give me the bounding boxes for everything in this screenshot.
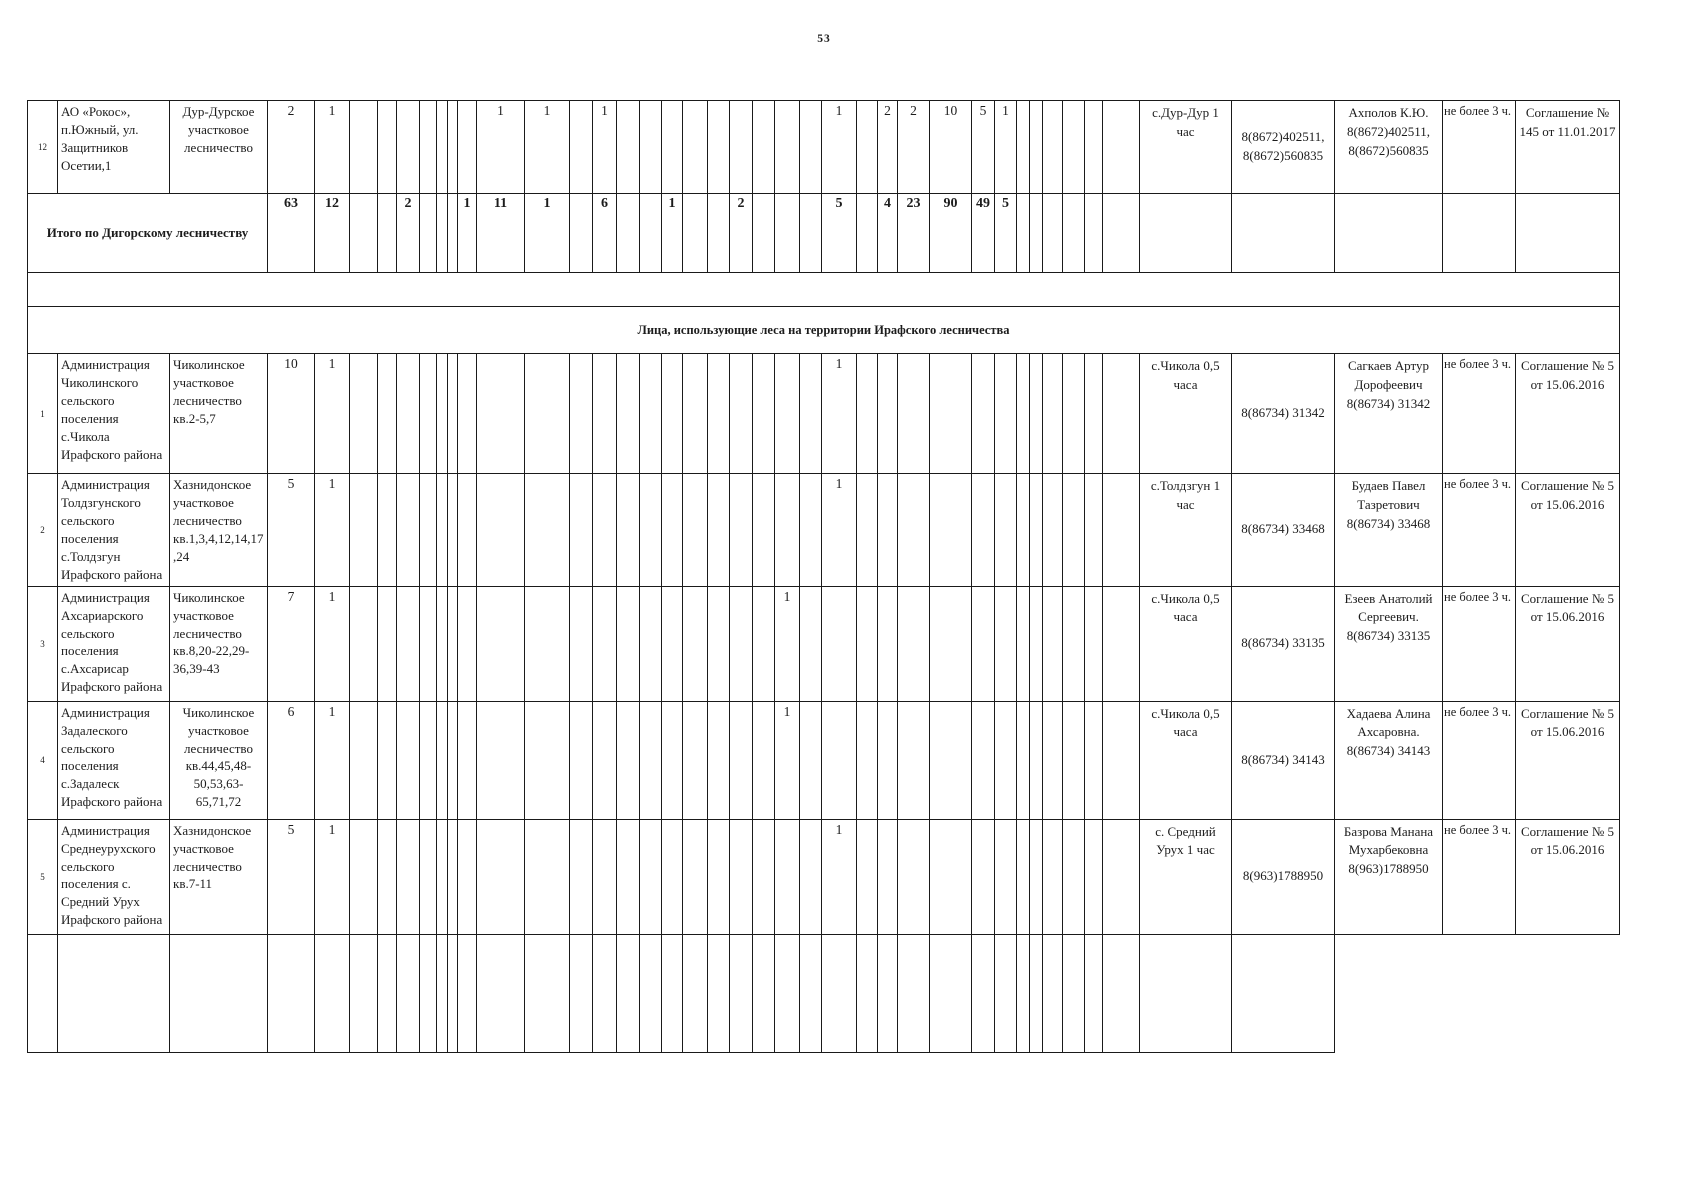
value-cell [857,934,878,1052]
value-cell [878,819,898,934]
organization-cell: АО «Рокос», п.Южный, ул. Защитников Осет… [58,101,170,194]
organization-cell [58,934,170,1052]
value-cell [448,101,458,194]
value-cell [1103,701,1140,819]
value-cell [898,474,930,587]
value-cell [437,819,448,934]
value-cell [570,819,593,934]
table-row-5: 5Администрация Среднеурухского сельского… [28,819,1620,934]
value-cell [930,701,972,819]
value-cell [878,934,898,1052]
value-cell: 1 [525,101,570,194]
limit-cell: не более 3 ч. [1443,474,1516,587]
value-cell [570,934,593,1052]
value-cell: 1 [315,354,350,474]
value-cell [1043,819,1063,934]
value-cell [800,586,822,701]
value-cell [1103,101,1140,194]
value-cell [617,819,640,934]
phone-cell: 8(86734) 34143 [1232,701,1335,819]
value-cell [525,474,570,587]
place-cell: с.Чикола 0,5 часа [1140,586,1232,701]
value-cell [640,101,662,194]
summary-value-cell: 1 [458,194,477,273]
summary-value-cell [1085,194,1103,273]
value-cell [995,701,1017,819]
section-header: Лица, использующие леса на территории Ир… [28,307,1620,354]
value-cell: 1 [593,101,617,194]
contact-cell: Ахполов К.Ю. 8(8672)402511, 8(8672)56083… [1335,101,1443,194]
summary-value-cell [775,194,800,273]
value-cell [1043,101,1063,194]
value-cell: 1 [822,474,857,587]
summary-value-cell [1043,194,1063,273]
value-cell: 1 [315,586,350,701]
value-cell [930,354,972,474]
value-cell [640,701,662,819]
phone-cell [1232,934,1335,1052]
value-cell [458,101,477,194]
table-row-4: 4Администрация Задалеского сельского пос… [28,701,1620,819]
value-cell [753,474,775,587]
value-cell [1085,474,1103,587]
value-cell [437,934,448,1052]
value-cell [437,101,448,194]
value-cell [800,354,822,474]
value-cell [1017,474,1030,587]
value-cell [1063,474,1085,587]
summary-value-cell [753,194,775,273]
place-cell: с. Средний Урух 1 час [1140,819,1232,934]
contact-cell: Базрова Манана Мухарбековна 8(963)178895… [1335,819,1443,934]
agreement-cell: Соглашение № 5 от 15.06.2016 [1516,474,1620,587]
value-cell [1063,101,1085,194]
value-cell [477,474,525,587]
value-cell [730,934,753,1052]
limit-cell: не более 3 ч. [1443,101,1516,194]
forestry-cell: Дур-Дурское участковое лесничество [170,101,268,194]
value-cell [775,474,800,587]
value-cell [708,354,730,474]
value-cell [378,474,397,587]
phone-cell: 8(86734) 33468 [1232,474,1335,587]
value-cell [857,819,878,934]
value-cell [730,701,753,819]
value-cell [378,354,397,474]
value-cell [730,819,753,934]
summary-value-cell [378,194,397,273]
value-cell [640,934,662,1052]
value-cell [448,819,458,934]
table-row-1: 1Администрация Чиколинского сельского по… [28,354,1620,474]
phone-cell: 8(86734) 33135 [1232,586,1335,701]
summary-value-cell: 5 [995,194,1017,273]
value-cell [477,354,525,474]
value-cell [1085,101,1103,194]
row-number: 5 [28,819,58,934]
value-cell [640,474,662,587]
table-row-3: 3Администрация Ахсариарского сельского п… [28,586,1620,701]
value-cell [1043,354,1063,474]
value-cell [397,701,420,819]
value-cell [448,701,458,819]
value-cell [1030,101,1043,194]
summary-value-cell: 2 [397,194,420,273]
summary-value-cell: 90 [930,194,972,273]
value-cell [640,819,662,934]
value-cell [448,934,458,1052]
value-cell [1063,586,1085,701]
contact-cell: Хадаева Алина Ахсаровна. 8(86734) 34143 [1335,701,1443,819]
value-cell [593,354,617,474]
value-cell [898,586,930,701]
place-cell: с.Дур-Дур 1 час [1140,101,1232,194]
value-cell [525,354,570,474]
value-cell [708,101,730,194]
value-cell [437,354,448,474]
value-cell [397,819,420,934]
value-cell [857,101,878,194]
value-cell: 7 [268,586,315,701]
summary-value-cell [1017,194,1030,273]
agreement-cell: Соглашение № 5 от 15.06.2016 [1516,701,1620,819]
phone-cell: 8(8672)402511, 8(8672)560835 [1232,101,1335,194]
value-cell [448,586,458,701]
value-cell [662,701,683,819]
organization-cell: Администрация Задалеского сельского посе… [58,701,170,819]
value-cell [1043,474,1063,587]
value-cell [995,586,1017,701]
value-cell [857,586,878,701]
value-cell [730,354,753,474]
value-cell [1063,819,1085,934]
value-cell: 1 [775,701,800,819]
summary-value-cell [1063,194,1085,273]
value-cell: 1 [315,701,350,819]
summary-value-cell [708,194,730,273]
value-cell [448,354,458,474]
summary-value-cell [683,194,708,273]
value-cell [378,586,397,701]
value-cell [397,934,420,1052]
value-cell [1017,354,1030,474]
value-cell [1103,474,1140,587]
value-cell: 5 [268,819,315,934]
value-cell [662,586,683,701]
value-cell: 6 [268,701,315,819]
value-cell [458,934,477,1052]
summary-value-cell: 49 [972,194,995,273]
value-cell [593,934,617,1052]
forestry-cell: Чиколинское участковое лесничество кв.2-… [170,354,268,474]
value-cell [350,586,378,701]
value-cell [972,354,995,474]
agreement-cell: Соглашение № 145 от 11.01.2017 [1516,101,1620,194]
value-cell [617,586,640,701]
partial-row [28,934,1620,1052]
value-cell [775,101,800,194]
value-cell [378,819,397,934]
value-cell [995,819,1017,934]
value-cell [753,819,775,934]
summary-value-cell [617,194,640,273]
value-cell [350,354,378,474]
summary-value-cell: 1 [662,194,683,273]
value-cell [1085,354,1103,474]
contact-cell [1335,194,1443,273]
row-number: 3 [28,586,58,701]
value-cell [525,819,570,934]
blank-cell [28,273,1620,307]
value-cell [857,701,878,819]
value-cell [437,586,448,701]
summary-value-cell [1103,194,1140,273]
forestry-cell: Чиколинское участковое лесничество кв.8,… [170,586,268,701]
value-cell [1043,934,1063,1052]
summary-label: Итого по Дигорскому лесничеству [28,194,268,273]
value-cell [458,354,477,474]
forestry-cell: Хазнидонское участковое лесничество кв.1… [170,474,268,587]
summary-value-cell [857,194,878,273]
value-cell [593,474,617,587]
value-cell [753,701,775,819]
value-cell [420,934,437,1052]
summary-value-cell: 5 [822,194,857,273]
value-cell [458,474,477,587]
value-cell [640,354,662,474]
value-cell [593,586,617,701]
value-cell [477,701,525,819]
value-cell: 1 [315,474,350,587]
value-cell [617,474,640,587]
limit-cell [1443,194,1516,273]
summary-value-cell [1030,194,1043,273]
value-cell: 1 [315,819,350,934]
place-cell: с.Чикола 0,5 часа [1140,701,1232,819]
page-number: 53 [28,33,1620,45]
summary-value-cell [350,194,378,273]
value-cell [1017,934,1030,1052]
value-cell [593,819,617,934]
value-cell [1085,819,1103,934]
value-cell [995,934,1017,1052]
value-cell: 1 [477,101,525,194]
row-number: 2 [28,474,58,587]
value-cell [350,474,378,587]
value-cell [1063,934,1085,1052]
value-cell [570,101,593,194]
value-cell [972,819,995,934]
value-cell [800,819,822,934]
value-cell [1030,586,1043,701]
value-cell [1030,934,1043,1052]
value-cell [617,934,640,1052]
value-cell [397,354,420,474]
summary-value-cell: 6 [593,194,617,273]
place-cell [1140,194,1232,273]
contact-cell: Езеев Анатолий Сергеевич. 8(86734) 33135 [1335,586,1443,701]
limit-cell: не более 3 ч. [1443,701,1516,819]
value-cell [857,474,878,587]
value-cell [878,474,898,587]
value-cell [878,586,898,701]
value-cell: 1 [995,101,1017,194]
phone-cell: 8(963)1788950 [1232,819,1335,934]
value-cell [437,474,448,587]
value-cell [420,474,437,587]
summary-value-cell [420,194,437,273]
summary-value-cell [570,194,593,273]
value-cell [753,354,775,474]
value-cell [570,701,593,819]
value-cell [972,701,995,819]
summary-value-cell: 12 [315,194,350,273]
blank-row [28,273,1620,307]
value-cell [930,474,972,587]
contact-cell: Будаев Павел Тазретович 8(86734) 33468 [1335,474,1443,587]
limit-cell: не более 3 ч. [1443,354,1516,474]
organization-cell: Администрация Толдзгунского сельского по… [58,474,170,587]
limit-cell: не более 3 ч. [1443,586,1516,701]
phone-cell: 8(86734) 31342 [1232,354,1335,474]
value-cell [730,474,753,587]
value-cell [1017,701,1030,819]
value-cell [730,101,753,194]
agreement-cell: Соглашение № 5 от 15.06.2016 [1516,819,1620,934]
value-cell [1030,354,1043,474]
value-cell [397,101,420,194]
place-cell: с.Чикола 0,5 часа [1140,354,1232,474]
value-cell [1030,701,1043,819]
row-number: 1 [28,354,58,474]
value-cell [857,354,878,474]
value-cell [420,354,437,474]
agreement-cell [1516,194,1620,273]
summary-value-cell [448,194,458,273]
value-cell [822,586,857,701]
value-cell [822,701,857,819]
value-cell [525,934,570,1052]
summary-value-cell: 4 [878,194,898,273]
table-row-2: 2Администрация Толдзгунского сельского п… [28,474,1620,587]
value-cell [350,101,378,194]
value-cell [617,701,640,819]
value-cell: 10 [930,101,972,194]
value-cell [1085,701,1103,819]
value-cell [708,474,730,587]
value-cell [617,354,640,474]
value-cell [708,701,730,819]
value-cell [420,701,437,819]
value-cell [1085,934,1103,1052]
summary-value-cell [437,194,448,273]
value-cell [753,934,775,1052]
limit-cell: не более 3 ч. [1443,819,1516,934]
value-cell [420,819,437,934]
value-cell: 2 [898,101,930,194]
forestry-cell [170,934,268,1052]
value-cell [1030,474,1043,587]
value-cell [458,819,477,934]
organization-cell: Администрация Ахсариарского сельского по… [58,586,170,701]
summary-value-cell: 1 [525,194,570,273]
value-cell [898,701,930,819]
value-cell [800,934,822,1052]
value-cell [593,701,617,819]
value-cell [477,819,525,934]
value-cell: 1 [822,354,857,474]
value-cell [898,354,930,474]
value-cell [878,701,898,819]
value-cell [683,101,708,194]
value-cell [350,934,378,1052]
value-cell [662,354,683,474]
value-cell [753,586,775,701]
value-cell [930,819,972,934]
value-cell [708,934,730,1052]
value-cell [1085,586,1103,701]
value-cell [268,934,315,1052]
value-cell [448,474,458,587]
value-cell [378,701,397,819]
value-cell [420,101,437,194]
value-cell [570,474,593,587]
value-cell [800,701,822,819]
value-cell [800,474,822,587]
summary-value-cell: 2 [730,194,753,273]
section-header-row: Лица, использующие леса на территории Ир… [28,307,1620,354]
value-cell [662,101,683,194]
value-cell: 1 [315,101,350,194]
contact-cell: Сагкаев Артур Дорофеевич 8(86734) 31342 [1335,354,1443,474]
value-cell [662,934,683,1052]
place-cell: с.Толдзгун 1 час [1140,474,1232,587]
value-cell [995,474,1017,587]
value-cell [1063,701,1085,819]
value-cell [930,586,972,701]
value-cell [1103,934,1140,1052]
value-cell [378,934,397,1052]
forestry-usage-table: 12АО «Рокос», п.Южный, ул. Защитников Ос… [27,100,1620,1053]
summary-value-cell: 11 [477,194,525,273]
value-cell [477,934,525,1052]
value-cell [683,354,708,474]
summary-value-cell [800,194,822,273]
organization-cell: Администрация Среднеурухского сельского … [58,819,170,934]
summary-value-cell: 23 [898,194,930,273]
value-cell [350,701,378,819]
value-cell [683,819,708,934]
value-cell [570,586,593,701]
agreement-cell: Соглашение № 5 от 15.06.2016 [1516,586,1620,701]
value-cell [315,934,350,1052]
value-cell: 2 [878,101,898,194]
value-cell [753,101,775,194]
value-cell: 10 [268,354,315,474]
value-cell [662,819,683,934]
value-cell: 1 [775,586,800,701]
place-cell [1140,934,1232,1052]
value-cell [378,101,397,194]
summary-row: Итого по Дигорскому лесничеству631221111… [28,194,1620,273]
value-cell [1030,819,1043,934]
value-cell [730,586,753,701]
value-cell [995,354,1017,474]
value-cell [617,101,640,194]
value-cell [775,934,800,1052]
value-cell [1043,586,1063,701]
value-cell [898,819,930,934]
